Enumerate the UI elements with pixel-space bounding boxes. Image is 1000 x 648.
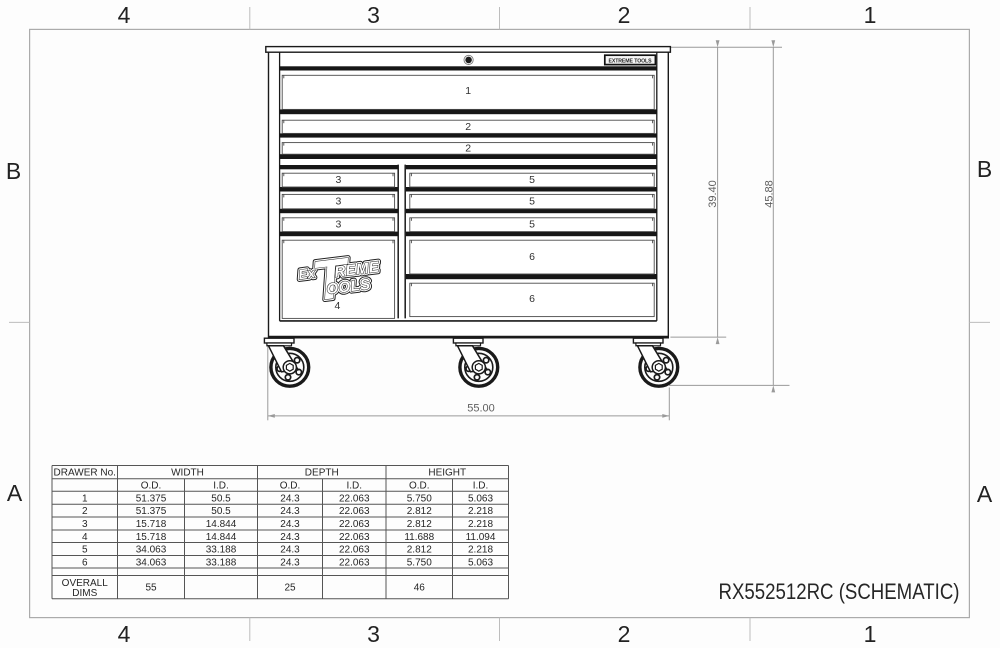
svg-text:2: 2	[82, 506, 88, 517]
svg-text:33.188: 33.188	[206, 545, 237, 556]
svg-text:5: 5	[529, 219, 535, 231]
svg-text:50.5: 50.5	[211, 493, 231, 504]
svg-text:4: 4	[118, 2, 131, 28]
svg-text:EXTREME TOOLS: EXTREME TOOLS	[609, 59, 653, 65]
svg-text:4: 4	[118, 621, 131, 647]
svg-text:24.3: 24.3	[280, 532, 300, 543]
svg-text:51.375: 51.375	[136, 506, 167, 517]
svg-text:DRAWER No.: DRAWER No.	[54, 468, 116, 479]
svg-text:24.3: 24.3	[280, 519, 300, 530]
svg-text:O.D.: O.D.	[409, 480, 430, 491]
svg-text:2: 2	[618, 621, 631, 647]
svg-text:I.D.: I.D.	[346, 480, 362, 491]
svg-text:24.3: 24.3	[280, 545, 300, 556]
svg-text:50.5: 50.5	[211, 506, 231, 517]
svg-text:34.063: 34.063	[136, 545, 167, 556]
svg-text:25: 25	[284, 583, 296, 594]
svg-text:15.718: 15.718	[136, 519, 167, 530]
svg-text:3: 3	[335, 196, 341, 208]
svg-text:2.218: 2.218	[468, 506, 493, 517]
svg-text:22.063: 22.063	[339, 532, 370, 543]
svg-text:A: A	[7, 480, 23, 506]
svg-text:55.00: 55.00	[467, 403, 495, 415]
svg-text:15.718: 15.718	[136, 532, 167, 543]
svg-text:HEIGHT: HEIGHT	[428, 468, 466, 479]
svg-text:22.063: 22.063	[339, 545, 370, 556]
svg-text:34.063: 34.063	[136, 557, 167, 568]
svg-text:6: 6	[82, 557, 88, 568]
svg-text:O.D.: O.D.	[141, 480, 162, 491]
svg-text:3: 3	[335, 174, 341, 186]
svg-text:B: B	[6, 158, 21, 184]
svg-text:1: 1	[864, 2, 877, 28]
svg-text:55: 55	[145, 583, 157, 594]
svg-text:O.D.: O.D.	[280, 480, 301, 491]
svg-text:11.094: 11.094	[466, 532, 496, 543]
svg-text:6: 6	[529, 251, 535, 263]
svg-text:39.40: 39.40	[707, 180, 719, 208]
svg-text:5.063: 5.063	[468, 557, 493, 568]
svg-text:11.688: 11.688	[404, 532, 434, 543]
svg-text:A: A	[977, 481, 993, 507]
svg-text:14.844: 14.844	[206, 519, 237, 530]
svg-text:5: 5	[529, 174, 535, 186]
svg-text:45.88: 45.88	[764, 180, 776, 208]
svg-text:5.063: 5.063	[468, 493, 493, 504]
svg-text:33.188: 33.188	[206, 557, 237, 568]
svg-text:5: 5	[82, 545, 88, 556]
svg-text:1: 1	[465, 85, 471, 97]
svg-text:I.D.: I.D.	[473, 480, 489, 491]
svg-text:3: 3	[367, 621, 380, 647]
svg-text:2.812: 2.812	[407, 506, 432, 517]
svg-text:24.3: 24.3	[280, 493, 300, 504]
svg-text:51.375: 51.375	[136, 493, 167, 504]
svg-text:DIMS: DIMS	[72, 588, 97, 599]
svg-text:5.750: 5.750	[407, 557, 432, 568]
svg-text:2.812: 2.812	[407, 519, 432, 530]
svg-text:22.063: 22.063	[339, 557, 370, 568]
svg-text:22.063: 22.063	[339, 493, 370, 504]
svg-text:WIDTH: WIDTH	[171, 468, 204, 479]
svg-text:22.063: 22.063	[339, 506, 370, 517]
svg-text:3: 3	[335, 219, 341, 231]
svg-text:RX552512RC (SCHEMATIC): RX552512RC (SCHEMATIC)	[719, 579, 960, 604]
svg-text:3: 3	[367, 2, 380, 28]
svg-text:1: 1	[864, 621, 877, 647]
svg-text:I.D.: I.D.	[213, 480, 229, 491]
svg-text:DEPTH: DEPTH	[305, 468, 339, 479]
svg-text:4: 4	[82, 532, 88, 543]
svg-text:2.218: 2.218	[468, 519, 493, 530]
svg-text:2: 2	[465, 121, 471, 133]
svg-text:1: 1	[82, 493, 88, 504]
svg-text:2.218: 2.218	[468, 545, 493, 556]
svg-text:14.844: 14.844	[206, 532, 237, 543]
svg-text:46: 46	[414, 583, 426, 594]
svg-text:6: 6	[529, 293, 535, 305]
svg-text:24.3: 24.3	[280, 557, 300, 568]
svg-text:5: 5	[529, 196, 535, 208]
svg-text:22.063: 22.063	[339, 519, 370, 530]
svg-text:3: 3	[82, 519, 88, 530]
svg-text:2.812: 2.812	[407, 545, 432, 556]
svg-text:2: 2	[618, 2, 631, 28]
svg-text:24.3: 24.3	[280, 506, 300, 517]
svg-text:2: 2	[465, 143, 471, 155]
svg-text:B: B	[977, 156, 992, 182]
svg-text:5.750: 5.750	[407, 493, 432, 504]
